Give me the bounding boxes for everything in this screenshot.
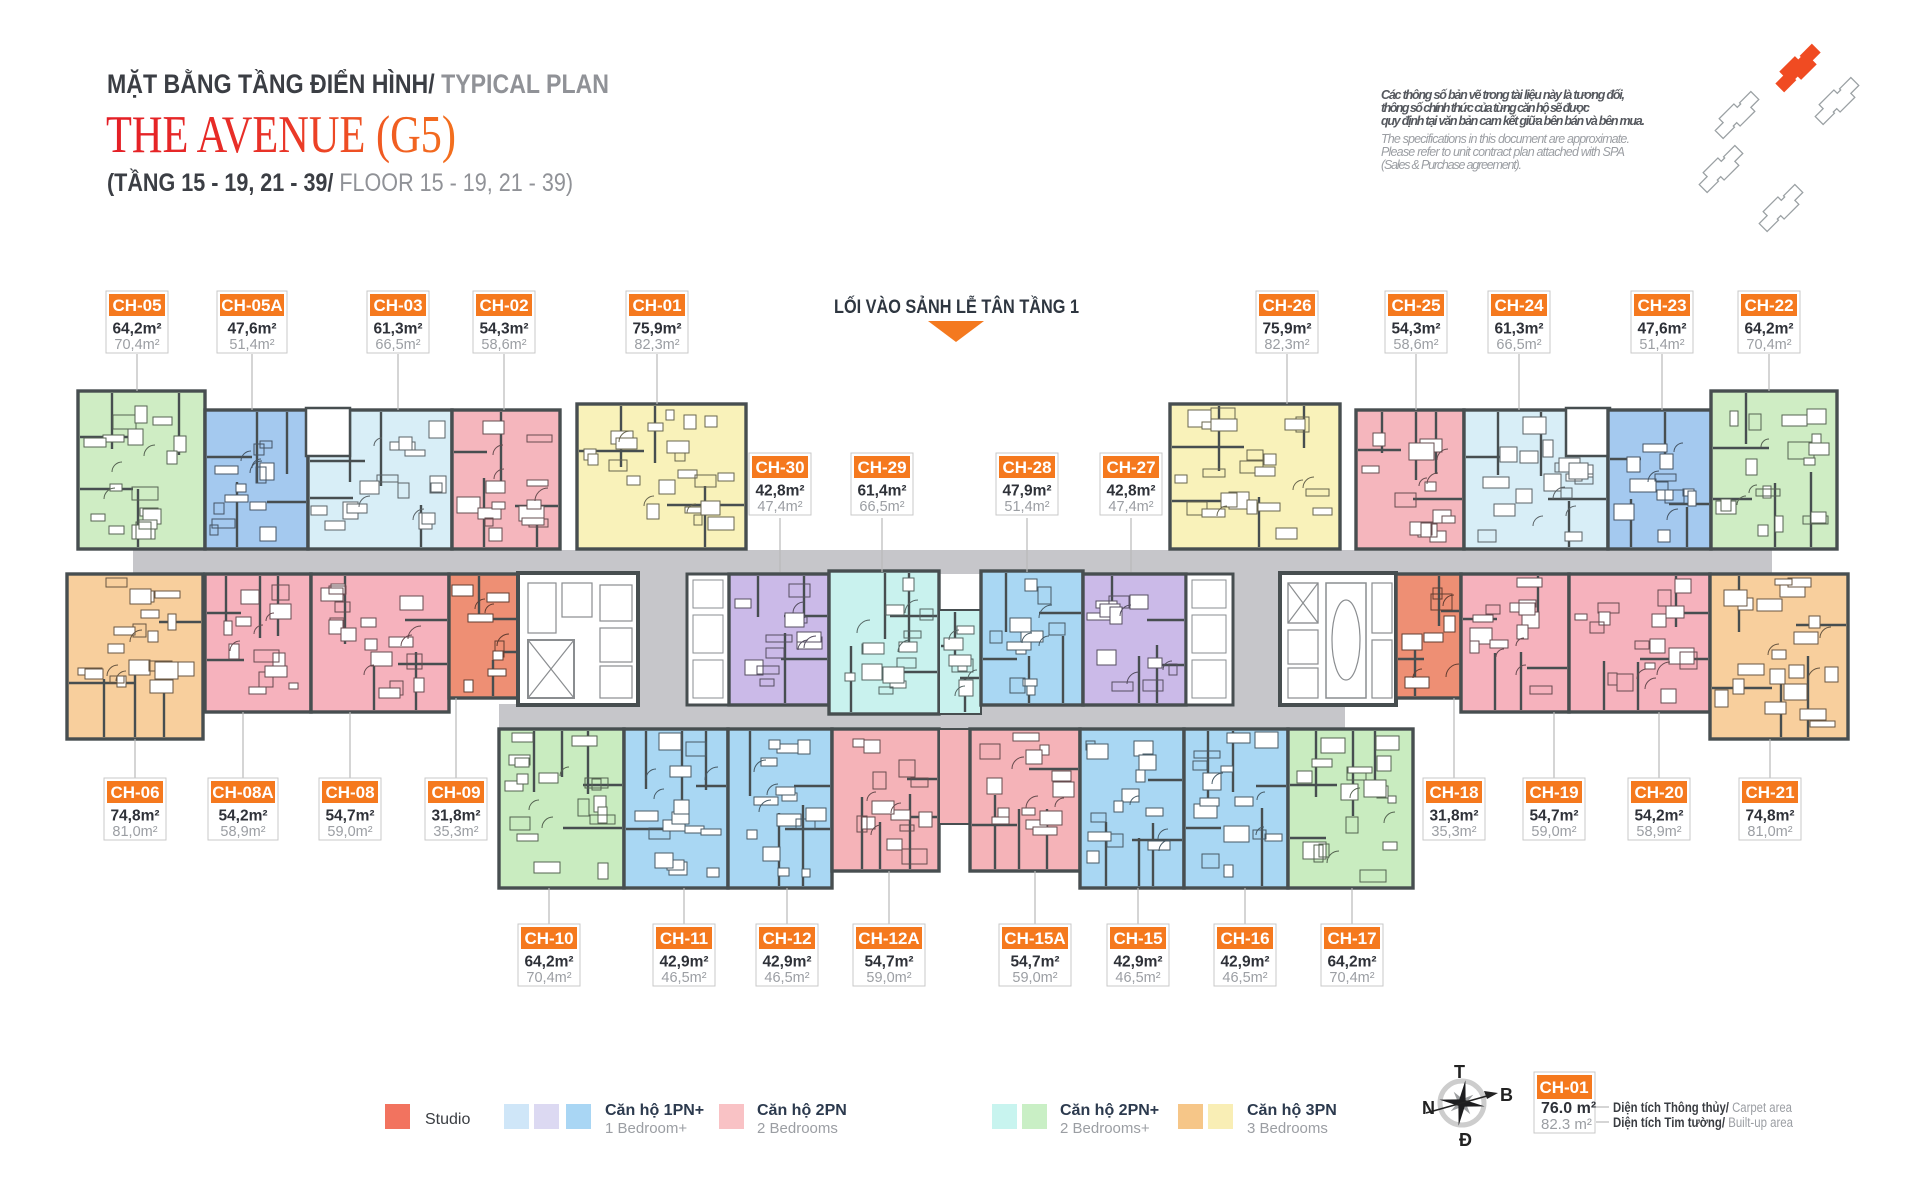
svg-text:82.3 m²: 82.3 m² bbox=[1541, 1116, 1592, 1133]
svg-text:31,8m²: 31,8m² bbox=[431, 808, 480, 825]
svg-text:47,6m²: 47,6m² bbox=[1637, 321, 1686, 338]
svg-text:70,4m²: 70,4m² bbox=[526, 970, 571, 986]
svg-text:74,8m²: 74,8m² bbox=[110, 808, 159, 825]
svg-text:Căn hộ 1PN+: Căn hộ 1PN+ bbox=[605, 1102, 704, 1119]
svg-text:N: N bbox=[1422, 1098, 1435, 1118]
svg-text:58,6m²: 58,6m² bbox=[1393, 337, 1438, 353]
svg-text:CH-11: CH-11 bbox=[660, 929, 708, 948]
svg-text:59,0m²: 59,0m² bbox=[866, 970, 911, 986]
svg-text:CH-29: CH-29 bbox=[857, 458, 906, 477]
svg-text:CH-08: CH-08 bbox=[325, 783, 374, 802]
svg-text:B: B bbox=[1500, 1085, 1513, 1105]
svg-text:70,4m²: 70,4m² bbox=[1329, 970, 1374, 986]
svg-text:(Sales & Purchase agreement).: (Sales & Purchase agreement). bbox=[1381, 158, 1522, 172]
svg-text:76.0 m²: 76.0 m² bbox=[1541, 1100, 1596, 1117]
svg-text:61,3m²: 61,3m² bbox=[1494, 321, 1543, 338]
svg-text:thông số chính thức của từng c: thông số chính thức của từng căn hộ sẽ đ… bbox=[1381, 101, 1590, 115]
svg-text:LỐI VÀO SẢNH LỄ TÂN TẦNG 1: LỐI VÀO SẢNH LỄ TÂN TẦNG 1 bbox=[834, 294, 1079, 318]
svg-text:CH-18: CH-18 bbox=[1429, 783, 1478, 802]
svg-text:61,3m²: 61,3m² bbox=[373, 321, 422, 338]
svg-text:75,9m²: 75,9m² bbox=[632, 321, 681, 338]
svg-text:CH-21: CH-21 bbox=[1745, 783, 1794, 802]
svg-text:CH-20: CH-20 bbox=[1634, 783, 1683, 802]
svg-text:CH-30: CH-30 bbox=[755, 458, 804, 477]
svg-text:54,7m²: 54,7m² bbox=[1010, 954, 1059, 971]
svg-text:CH-28: CH-28 bbox=[1002, 458, 1051, 477]
svg-text:61,4m²: 61,4m² bbox=[857, 483, 906, 500]
svg-text:46,5m²: 46,5m² bbox=[764, 970, 809, 986]
svg-text:54,2m²: 54,2m² bbox=[218, 808, 267, 825]
svg-text:Studio: Studio bbox=[425, 1111, 470, 1128]
svg-text:42,9m²: 42,9m² bbox=[1113, 954, 1162, 971]
svg-text:64,2m²: 64,2m² bbox=[112, 321, 161, 338]
svg-text:46,5m²: 46,5m² bbox=[1222, 970, 1267, 986]
svg-text:59,0m²: 59,0m² bbox=[1531, 824, 1576, 840]
svg-text:51,4m²: 51,4m² bbox=[1639, 337, 1684, 353]
svg-text:47,4m²: 47,4m² bbox=[757, 499, 802, 515]
svg-text:CH-25: CH-25 bbox=[1391, 296, 1440, 315]
svg-text:66,5m²: 66,5m² bbox=[375, 337, 420, 353]
svg-text:58,6m²: 58,6m² bbox=[481, 337, 526, 353]
svg-text:Đ: Đ bbox=[1459, 1130, 1472, 1150]
svg-text:CH-12A: CH-12A bbox=[858, 929, 919, 948]
svg-text:58,9m²: 58,9m² bbox=[220, 824, 265, 840]
svg-text:CH-22: CH-22 bbox=[1744, 296, 1793, 315]
svg-text:3 Bedrooms: 3 Bedrooms bbox=[1247, 1120, 1328, 1137]
svg-text:64,2m²: 64,2m² bbox=[524, 954, 573, 971]
svg-text:Diện tích Thông thủy/ Carpet a: Diện tích Thông thủy/ Carpet area bbox=[1613, 1100, 1792, 1115]
svg-text:35,3m²: 35,3m² bbox=[433, 824, 478, 840]
svg-text:42,8m²: 42,8m² bbox=[755, 483, 804, 500]
svg-text:CH-05A: CH-05A bbox=[221, 296, 282, 315]
svg-text:47,6m²: 47,6m² bbox=[227, 321, 276, 338]
svg-text:1 Bedroom+: 1 Bedroom+ bbox=[605, 1120, 687, 1137]
svg-text:81,0m²: 81,0m² bbox=[1747, 824, 1792, 840]
svg-text:54,2m²: 54,2m² bbox=[1634, 808, 1683, 825]
svg-text:82,3m²: 82,3m² bbox=[634, 337, 679, 353]
svg-text:CH-16: CH-16 bbox=[1220, 929, 1269, 948]
svg-text:54,3m²: 54,3m² bbox=[1391, 321, 1440, 338]
svg-text:66,5m²: 66,5m² bbox=[859, 499, 904, 515]
svg-text:CH-15A: CH-15A bbox=[1004, 929, 1065, 948]
svg-text:THE AVENUE (G5): THE AVENUE (G5) bbox=[106, 106, 456, 164]
svg-text:46,5m²: 46,5m² bbox=[1115, 970, 1160, 986]
svg-text:T: T bbox=[1454, 1062, 1465, 1082]
svg-text:CH-27: CH-27 bbox=[1106, 458, 1155, 477]
svg-text:58,9m²: 58,9m² bbox=[1636, 824, 1681, 840]
svg-text:CH-17: CH-17 bbox=[1327, 929, 1376, 948]
svg-text:(TẦNG 15 - 19, 21 - 39/ FLOOR: (TẦNG 15 - 19, 21 - 39/ FLOOR 15 - 19, 2… bbox=[107, 168, 573, 197]
svg-text:CH-24: CH-24 bbox=[1494, 296, 1544, 315]
svg-text:42,9m²: 42,9m² bbox=[762, 954, 811, 971]
svg-text:Căn hộ 2PN: Căn hộ 2PN bbox=[757, 1102, 847, 1119]
svg-text:35,3m²: 35,3m² bbox=[1431, 824, 1476, 840]
svg-text:54,3m²: 54,3m² bbox=[479, 321, 528, 338]
svg-text:CH-01: CH-01 bbox=[632, 296, 681, 315]
svg-text:CH-15: CH-15 bbox=[1113, 929, 1162, 948]
svg-text:64,2m²: 64,2m² bbox=[1327, 954, 1376, 971]
svg-text:51,4m²: 51,4m² bbox=[229, 337, 274, 353]
svg-text:75,9m²: 75,9m² bbox=[1262, 321, 1311, 338]
svg-text:CH-03: CH-03 bbox=[373, 296, 422, 315]
svg-text:54,7m²: 54,7m² bbox=[864, 954, 913, 971]
svg-text:CH-06: CH-06 bbox=[110, 783, 159, 802]
svg-text:CH-08A: CH-08A bbox=[212, 783, 273, 802]
svg-text:42,9m²: 42,9m² bbox=[1220, 954, 1269, 971]
svg-text:70,4m²: 70,4m² bbox=[1746, 337, 1791, 353]
svg-text:59,0m²: 59,0m² bbox=[327, 824, 372, 840]
svg-text:quy định tại văn bản cam kết g: quy định tại văn bản cam kết giữa bên bá… bbox=[1381, 114, 1645, 128]
svg-text:The specifications in this doc: The specifications in this document are … bbox=[1381, 132, 1630, 146]
svg-text:2 Bedrooms: 2 Bedrooms bbox=[757, 1120, 838, 1137]
svg-text:64,2m²: 64,2m² bbox=[1744, 321, 1793, 338]
svg-text:51,4m²: 51,4m² bbox=[1004, 499, 1049, 515]
svg-text:2 Bedrooms+: 2 Bedrooms+ bbox=[1060, 1120, 1150, 1137]
svg-text:CH-12: CH-12 bbox=[762, 929, 811, 948]
svg-text:MẶT BẰNG TẦNG ĐIỂN HÌNH/ TYPIC: MẶT BẰNG TẦNG ĐIỂN HÌNH/ TYPICAL PLAN bbox=[107, 68, 609, 99]
svg-text:66,5m²: 66,5m² bbox=[1496, 337, 1541, 353]
svg-text:46,5m²: 46,5m² bbox=[661, 970, 706, 986]
svg-text:54,7m²: 54,7m² bbox=[1529, 808, 1578, 825]
svg-text:CH-26: CH-26 bbox=[1262, 296, 1311, 315]
svg-text:CH-09: CH-09 bbox=[431, 783, 480, 802]
svg-text:42,8m²: 42,8m² bbox=[1106, 483, 1155, 500]
svg-text:47,9m²: 47,9m² bbox=[1002, 483, 1051, 500]
svg-text:47,4m²: 47,4m² bbox=[1108, 499, 1153, 515]
svg-text:82,3m²: 82,3m² bbox=[1264, 337, 1309, 353]
svg-text:31,8m²: 31,8m² bbox=[1429, 808, 1478, 825]
svg-text:CH-05: CH-05 bbox=[112, 296, 161, 315]
svg-text:70,4m²: 70,4m² bbox=[114, 337, 159, 353]
svg-text:59,0m²: 59,0m² bbox=[1012, 970, 1057, 986]
svg-text:CH-23: CH-23 bbox=[1637, 296, 1686, 315]
svg-text:Diện tích Tim tường/ Built-up: Diện tích Tim tường/ Built-up area bbox=[1613, 1115, 1793, 1130]
svg-text:CH-19: CH-19 bbox=[1529, 783, 1578, 802]
svg-text:54,7m²: 54,7m² bbox=[325, 808, 374, 825]
svg-text:CH-02: CH-02 bbox=[479, 296, 528, 315]
svg-text:CH-01: CH-01 bbox=[1539, 1078, 1588, 1097]
svg-text:Căn hộ 3PN: Căn hộ 3PN bbox=[1247, 1102, 1337, 1119]
svg-text:CH-10: CH-10 bbox=[524, 929, 573, 948]
svg-text:42,9m²: 42,9m² bbox=[659, 954, 708, 971]
svg-text:Please refer to unit contract: Please refer to unit contract plan attac… bbox=[1381, 145, 1625, 159]
svg-text:Căn hộ 2PN+: Căn hộ 2PN+ bbox=[1060, 1102, 1159, 1119]
svg-text:74,8m²: 74,8m² bbox=[1745, 808, 1794, 825]
svg-text:81,0m²: 81,0m² bbox=[112, 824, 157, 840]
svg-text:Các thông số bản vẽ trong tài: Các thông số bản vẽ trong tài liệu này l… bbox=[1381, 88, 1625, 102]
